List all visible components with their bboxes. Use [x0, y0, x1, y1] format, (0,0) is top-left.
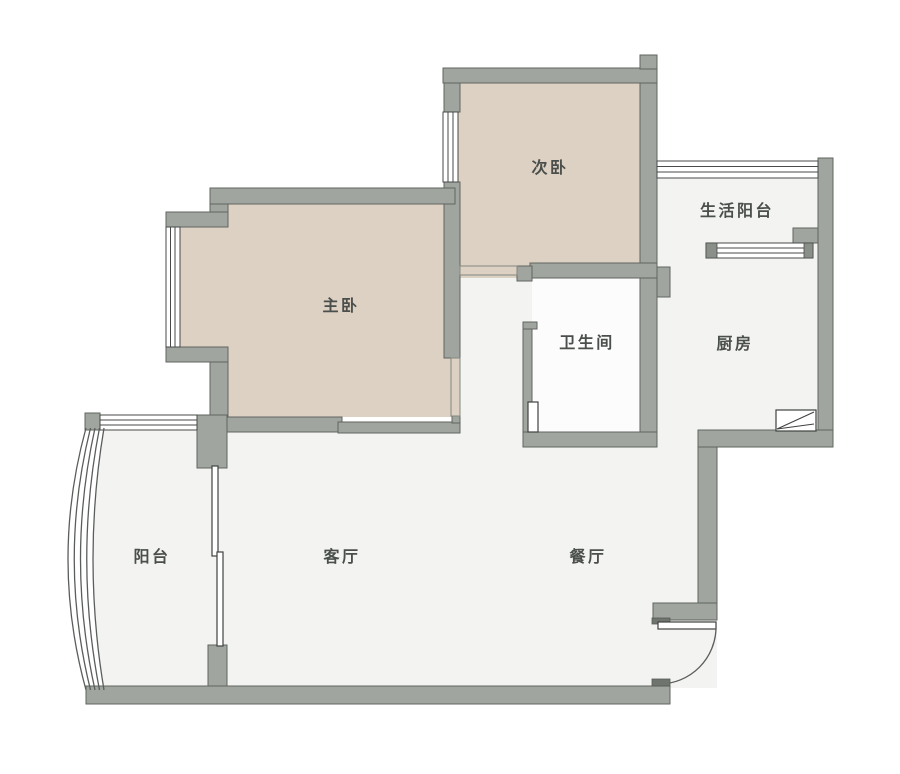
wall-top-second-bedroom — [443, 68, 657, 83]
wall-balcony-corner — [85, 413, 100, 430]
entry-door-leaf — [658, 622, 716, 629]
wall-balcony-partition-top — [197, 415, 227, 468]
room-label-master-bedroom: 主卧 — [322, 296, 359, 315]
room-label-second-bedroom: 次卧 — [531, 158, 568, 177]
kitchen-fold-door-symbol — [776, 410, 816, 431]
kitchen-divider-window-right-cap — [804, 243, 813, 258]
wall-central-stub-right — [657, 267, 670, 297]
wall-master-bottom-left — [210, 417, 342, 432]
room-label-balcony: 阳台 — [133, 547, 170, 566]
wall-second-bedroom-bottom — [530, 263, 657, 278]
room-label-service-balcony: 生活阳台 — [700, 201, 774, 220]
kitchen-divider-window — [706, 243, 813, 258]
wall-kitchen-bottom — [698, 430, 833, 447]
balcony-curved-window-line-1 — [68, 428, 86, 690]
room-label-bathroom: 卫生间 — [559, 333, 615, 352]
wall-right-exterior — [818, 158, 833, 447]
wall-bay-bottom — [166, 347, 228, 362]
wall-service-step — [793, 228, 818, 243]
master-bay-window — [166, 227, 180, 347]
second-bedroom-doorway — [460, 266, 517, 275]
wall-bathroom-bottom — [523, 432, 657, 447]
wall-master-bottom-right — [338, 422, 460, 433]
balcony-top-window — [100, 415, 197, 430]
wall-shared-bedrooms — [444, 182, 460, 358]
floor-plan: 主卧 次卧 生活阳台 卫生间 厨房 阳台 客厅 餐厅 — [0, 0, 900, 774]
wall-central-top-stub — [640, 55, 657, 69]
room-label-living-room: 客厅 — [323, 547, 360, 566]
entry-door-jamb-bottom — [652, 679, 670, 686]
room-label-dining-room: 餐厅 — [568, 547, 606, 566]
bathroom-floor — [532, 278, 640, 432]
hallway-floor — [460, 278, 532, 433]
room-label-kitchen: 厨房 — [716, 334, 753, 353]
master-bay-floor — [180, 227, 228, 347]
wall-bathroom-left-cap — [523, 322, 537, 329]
wall-second-bedroom-left-upper — [444, 83, 460, 112]
wall-bottom-exterior — [86, 686, 670, 704]
wall-bay-top — [166, 212, 228, 227]
wall-dining-right — [698, 447, 717, 607]
balcony-sliding-panel-1 — [212, 466, 218, 556]
master-bedroom-doorway — [451, 358, 460, 416]
kitchen-divider-window-left-cap — [706, 243, 717, 258]
wall-master-top — [210, 188, 455, 204]
service-balcony-window — [657, 161, 818, 178]
wall-entry-jamb-top — [653, 603, 717, 620]
second-bedroom-window — [443, 112, 458, 182]
balcony-sliding-panel-2 — [217, 552, 223, 646]
wall-balcony-partition-bottom — [208, 645, 227, 686]
wall-master-left-lower — [210, 362, 228, 418]
floor-plan-svg: 主卧 次卧 生活阳台 卫生间 厨房 阳台 客厅 餐厅 — [0, 0, 900, 774]
bathroom-door — [528, 402, 538, 432]
living-dining-floor — [218, 430, 700, 688]
wall-door-notch — [517, 266, 532, 281]
